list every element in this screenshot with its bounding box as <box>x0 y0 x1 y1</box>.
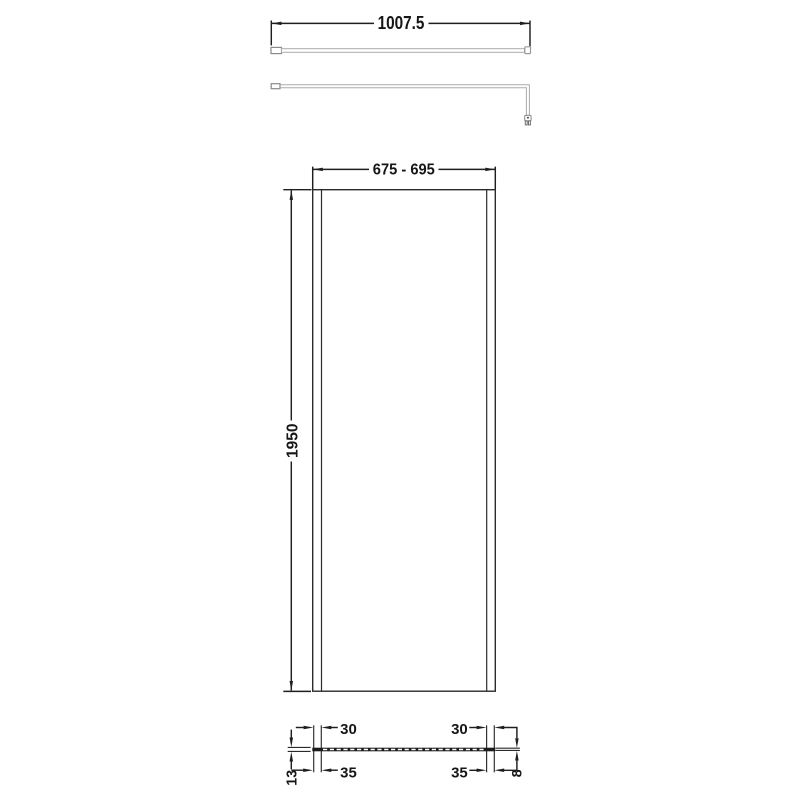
svg-text:13: 13 <box>284 770 300 786</box>
svg-text:30: 30 <box>451 722 468 738</box>
svg-text:8: 8 <box>509 769 524 778</box>
svg-text:1007.5: 1007.5 <box>378 13 425 33</box>
svg-text:30: 30 <box>340 722 357 738</box>
svg-text:35: 35 <box>451 766 468 782</box>
svg-text:1950: 1950 <box>284 423 301 458</box>
svg-text:675 - 695: 675 - 695 <box>373 162 435 179</box>
svg-text:35: 35 <box>340 766 357 782</box>
